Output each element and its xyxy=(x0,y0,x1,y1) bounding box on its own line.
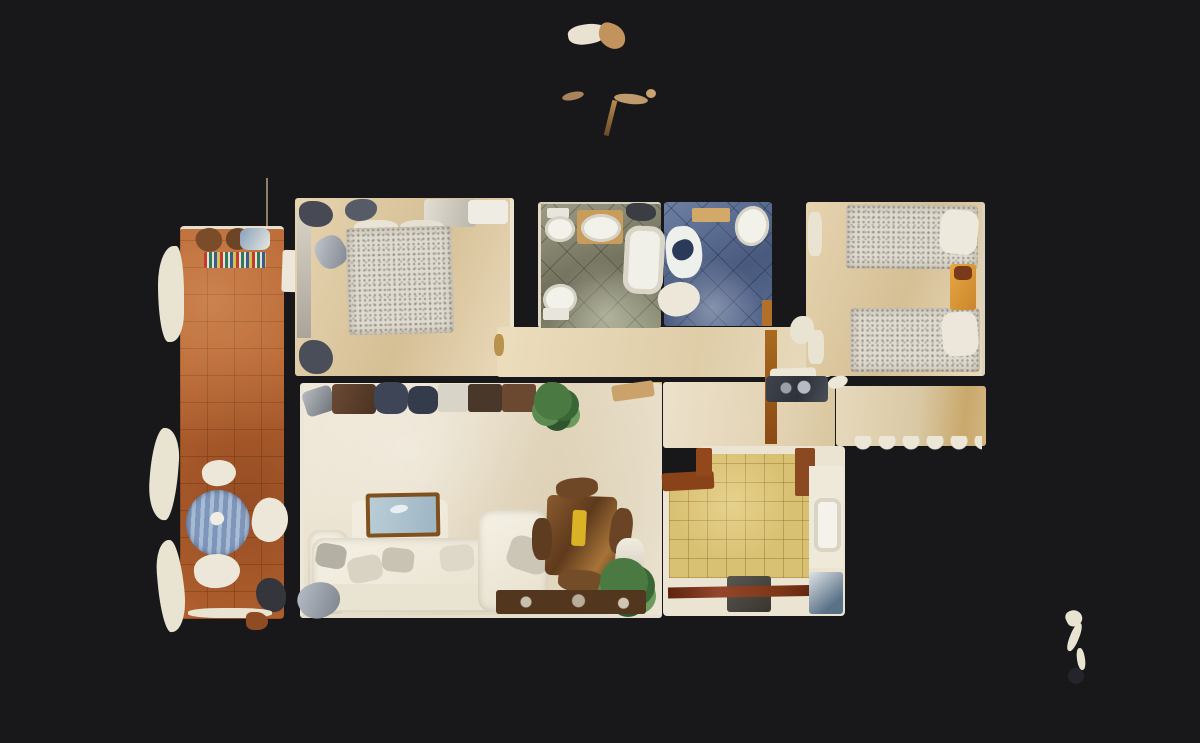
bathmat xyxy=(692,208,730,222)
scan-noise-shadow xyxy=(1068,668,1084,684)
bathroom-fixture-dark xyxy=(626,203,656,221)
door-threshold xyxy=(762,300,772,326)
dresser-white xyxy=(468,200,508,224)
scan-noise-fragment xyxy=(1076,648,1087,671)
armchairs-dark xyxy=(374,382,408,414)
sofa-pillow xyxy=(439,543,476,572)
cabinet-dark xyxy=(468,384,502,412)
coffee-table xyxy=(366,492,441,537)
scan-noise-fragment xyxy=(561,90,584,102)
kitchen-wall-brown xyxy=(696,448,712,476)
sofa-pillow xyxy=(381,546,415,573)
bathtub xyxy=(622,225,666,295)
mesh-fragment xyxy=(246,612,268,630)
scan-noise-fragment xyxy=(595,20,629,51)
wall-segment xyxy=(808,212,822,256)
toilet-tank xyxy=(543,308,569,320)
sideboard xyxy=(332,384,376,414)
laundry-items xyxy=(776,380,816,396)
hallway-items xyxy=(494,334,504,356)
bed-pillow xyxy=(938,208,980,255)
nightstand-item xyxy=(954,266,972,280)
scan-noise-fragment xyxy=(614,92,649,105)
sofa-cushions xyxy=(326,584,502,610)
double-bed xyxy=(346,226,455,336)
toilet xyxy=(545,216,575,242)
console-sideboard xyxy=(496,590,646,614)
scan-noise-pole xyxy=(266,178,268,230)
striped-rug xyxy=(204,252,266,268)
washbasin xyxy=(581,214,621,242)
corridor-scallop-edge xyxy=(852,436,982,454)
bed-pillow xyxy=(941,311,980,357)
bedroom-furniture-dark xyxy=(299,340,333,374)
plant xyxy=(534,382,572,420)
mesh-fragment xyxy=(147,427,181,521)
kitchen-corner-blue xyxy=(809,572,843,614)
cabinet-white xyxy=(438,384,468,412)
kitchen-sink xyxy=(814,498,841,552)
mesh-fragment xyxy=(158,246,184,342)
scan-noise-fragment xyxy=(646,89,656,98)
floorplan-scene xyxy=(0,0,1200,743)
terrace-decor xyxy=(240,228,270,250)
wall-segment xyxy=(808,330,824,364)
dining-chair xyxy=(532,518,552,560)
dining-table-runner xyxy=(571,510,587,547)
wardrobe xyxy=(297,212,311,338)
bedroom-furniture-dark xyxy=(299,201,333,227)
cabinet-brown xyxy=(502,384,536,412)
scan-noise-fragment xyxy=(604,100,618,136)
